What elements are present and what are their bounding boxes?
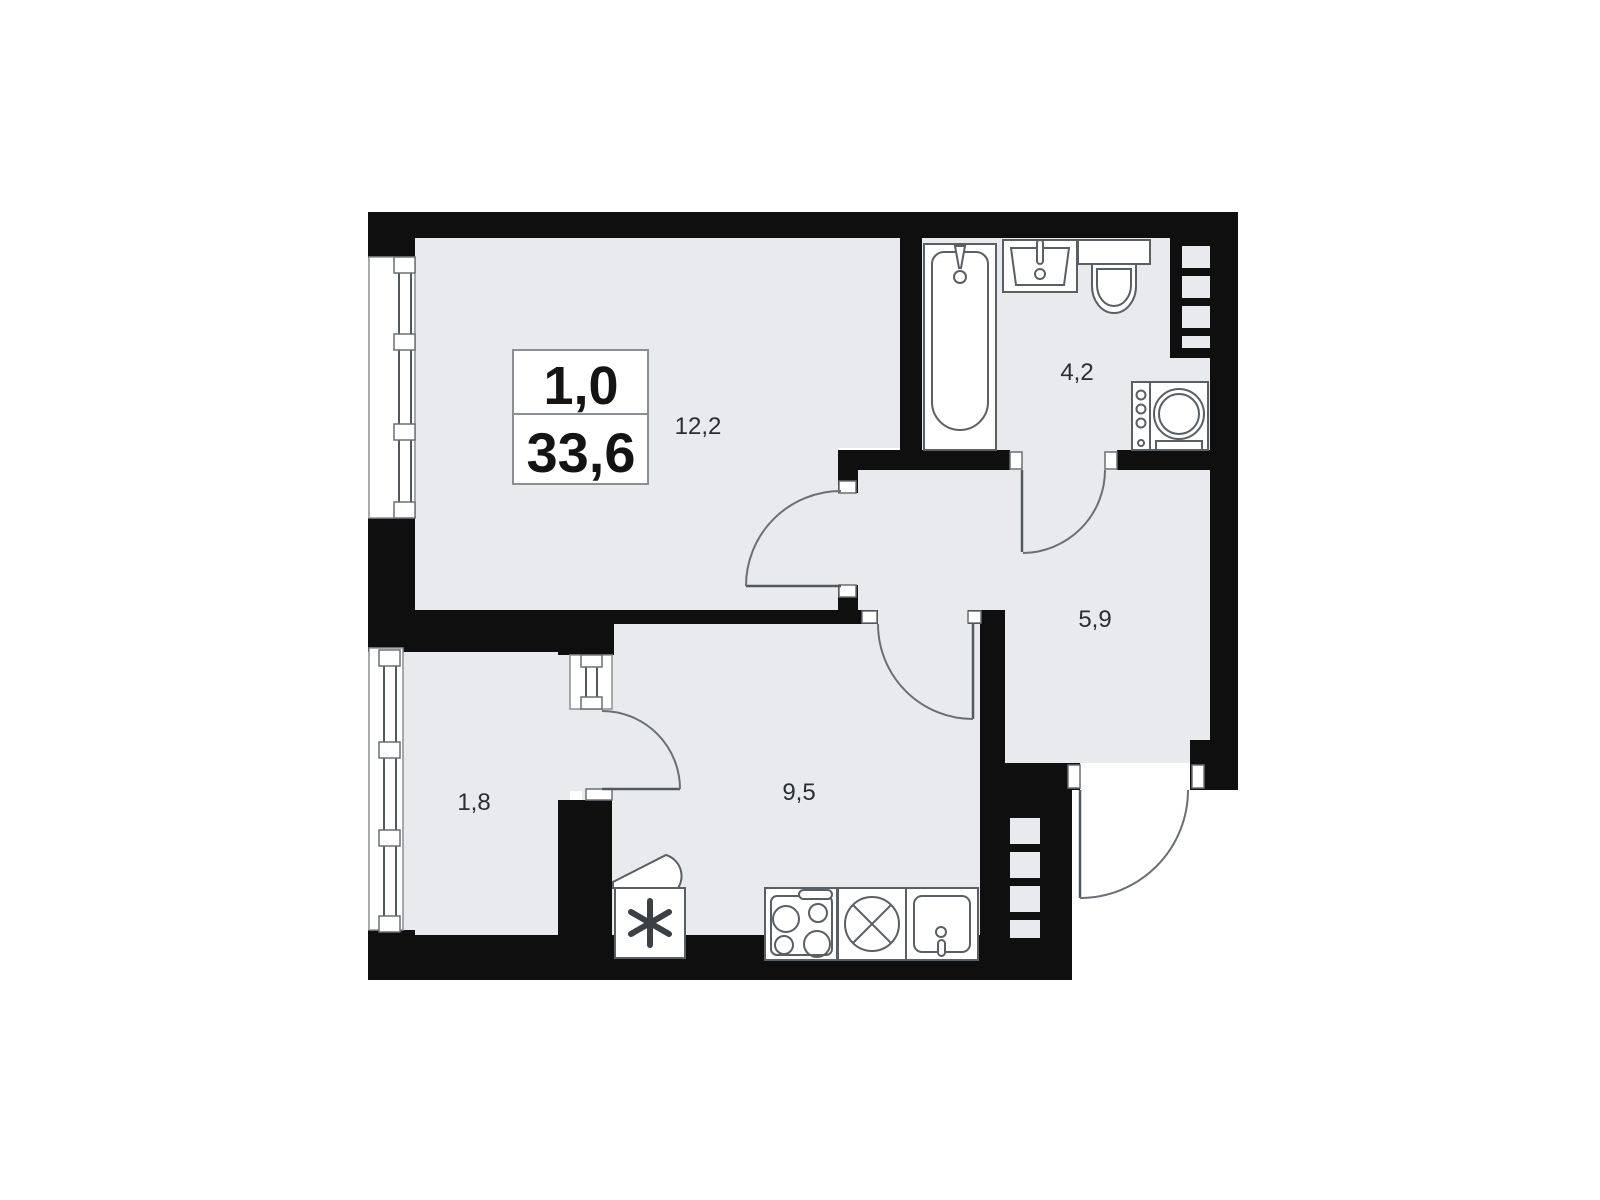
stove [765,888,837,960]
door-jamb [586,789,612,800]
balcony-door-threshold [566,709,606,791]
bathtub [924,244,996,450]
living-door-threshold [836,493,860,585]
balcony-area-label: 1,8 [457,789,490,816]
wall-bathroom-bottom-left [838,450,1010,470]
window-mullion [379,830,400,846]
washbasin-faucet [1037,240,1043,264]
wall-balcony-unit-top [558,610,614,655]
kitchen-sink [906,888,978,960]
sink-faucet-stem [938,940,945,956]
shaft-slot [1182,336,1210,348]
shaft-slot [1010,818,1040,844]
window-recess [369,648,403,930]
door-jamb [968,611,981,623]
window-mullion [394,502,415,518]
door-jamb [1105,452,1117,469]
window-mullion [581,697,602,709]
hallway-area-label: 5,9 [1078,606,1111,633]
wall-balcony-column [558,800,612,940]
total-area-value: 33,6 [527,421,636,484]
window-mullion [379,916,400,932]
door-jamb [1192,765,1204,788]
wall-top [368,212,1238,238]
shaft-slot [1010,852,1040,878]
kitchen-area-label: 9,5 [782,779,815,806]
floor-plan-drawing: 1,0 33,6 12,2 4,2 5,9 9,5 1,8 [0,0,1600,1200]
window-mullion [394,257,415,273]
wall-kitchen-right [980,610,1005,940]
toilet-tank [1078,240,1150,264]
window-mullion [379,742,400,758]
balcony-sidelight-window [570,655,612,709]
window-recess [369,257,415,518]
living-room-floor [415,238,900,610]
fridge [615,888,685,958]
wall-right-outer [1210,212,1238,790]
shaft-slot [1182,306,1210,328]
wall-bathroom-bottom-right [1117,450,1210,470]
window-mullion [581,655,602,667]
door-jamb [839,481,856,493]
shaft-slot [1182,276,1210,298]
window-mullion [394,334,415,350]
shaft-slot [1182,246,1210,268]
balcony-window [369,648,403,932]
washbasin [1003,240,1077,292]
door-jamb [862,611,877,623]
kitchen-door-threshold [878,610,970,626]
title-block: 1,0 33,6 [513,350,648,484]
living-window [369,257,415,518]
floor-plan-page: 1,0 33,6 12,2 4,2 5,9 9,5 1,8 [0,0,1600,1200]
door-jamb [1068,765,1080,788]
shaft-slot [1010,886,1040,912]
wall-living-bathroom [900,238,922,455]
door-jamb [839,585,856,597]
door-jamb [1010,452,1022,469]
rooms-count-value: 1,0 [543,356,618,416]
living-area-label: 12,2 [675,413,722,440]
appliance-slot [838,888,906,960]
wall-left-top-corner [368,212,415,258]
window-mullion [394,424,415,440]
bathroom-door-threshold [1022,450,1105,472]
window-mullion [379,650,400,666]
wall-living-balcony [368,610,562,652]
stove-handle [799,890,832,899]
bathroom-area-label: 4,2 [1060,359,1093,386]
washing-machine [1132,382,1208,450]
shaft-slot [1010,920,1040,938]
bathtub-outer [924,244,996,450]
